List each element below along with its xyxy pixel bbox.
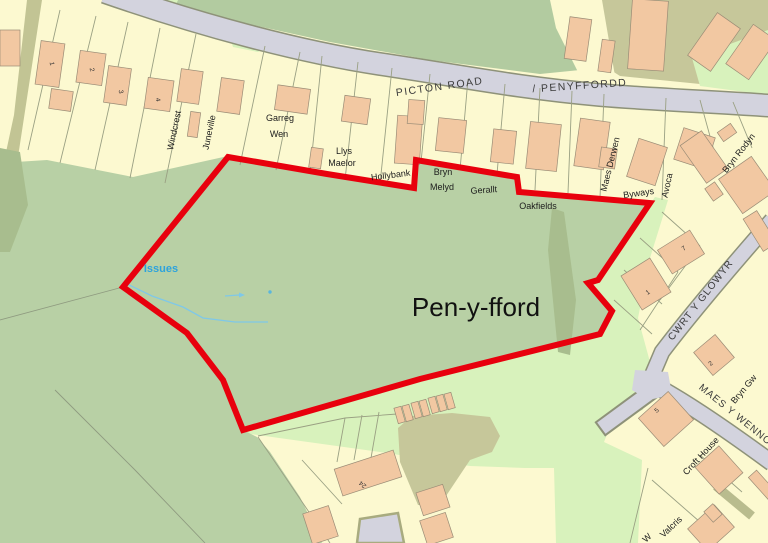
building [0, 30, 20, 66]
building [628, 0, 669, 71]
building [274, 85, 310, 114]
building [341, 95, 370, 124]
building [526, 122, 562, 172]
house-label-maelor: Maelor [328, 158, 356, 168]
building [177, 69, 203, 105]
house-label-garreg: Garreg [266, 113, 294, 123]
house-label-bryn: Bryn [434, 167, 453, 177]
site-plan-map: PICTON ROAD / PENYFFORDD CWRT Y GLOWYR M… [0, 0, 768, 543]
road-stub-bottom [357, 513, 404, 543]
building [407, 99, 425, 124]
site-label: Pen-y-fford [412, 292, 540, 322]
map-canvas: PICTON ROAD / PENYFFORDD CWRT Y GLOWYR M… [0, 0, 768, 543]
spring-dot-icon [268, 290, 271, 293]
house-label-llys: Llys [336, 146, 353, 156]
building [309, 147, 324, 168]
building [144, 77, 174, 111]
building [217, 78, 245, 115]
building [435, 118, 466, 154]
house-label-wen: Wen [270, 129, 288, 139]
building [490, 129, 516, 164]
building [104, 66, 132, 106]
building [49, 89, 74, 112]
water-label-issues: Issues [144, 263, 178, 275]
house-label-gerallt: Gerallt [470, 184, 498, 196]
house-label-melyd: Melyd [430, 182, 454, 192]
house-label-oakfields: Oakfields [519, 201, 557, 211]
